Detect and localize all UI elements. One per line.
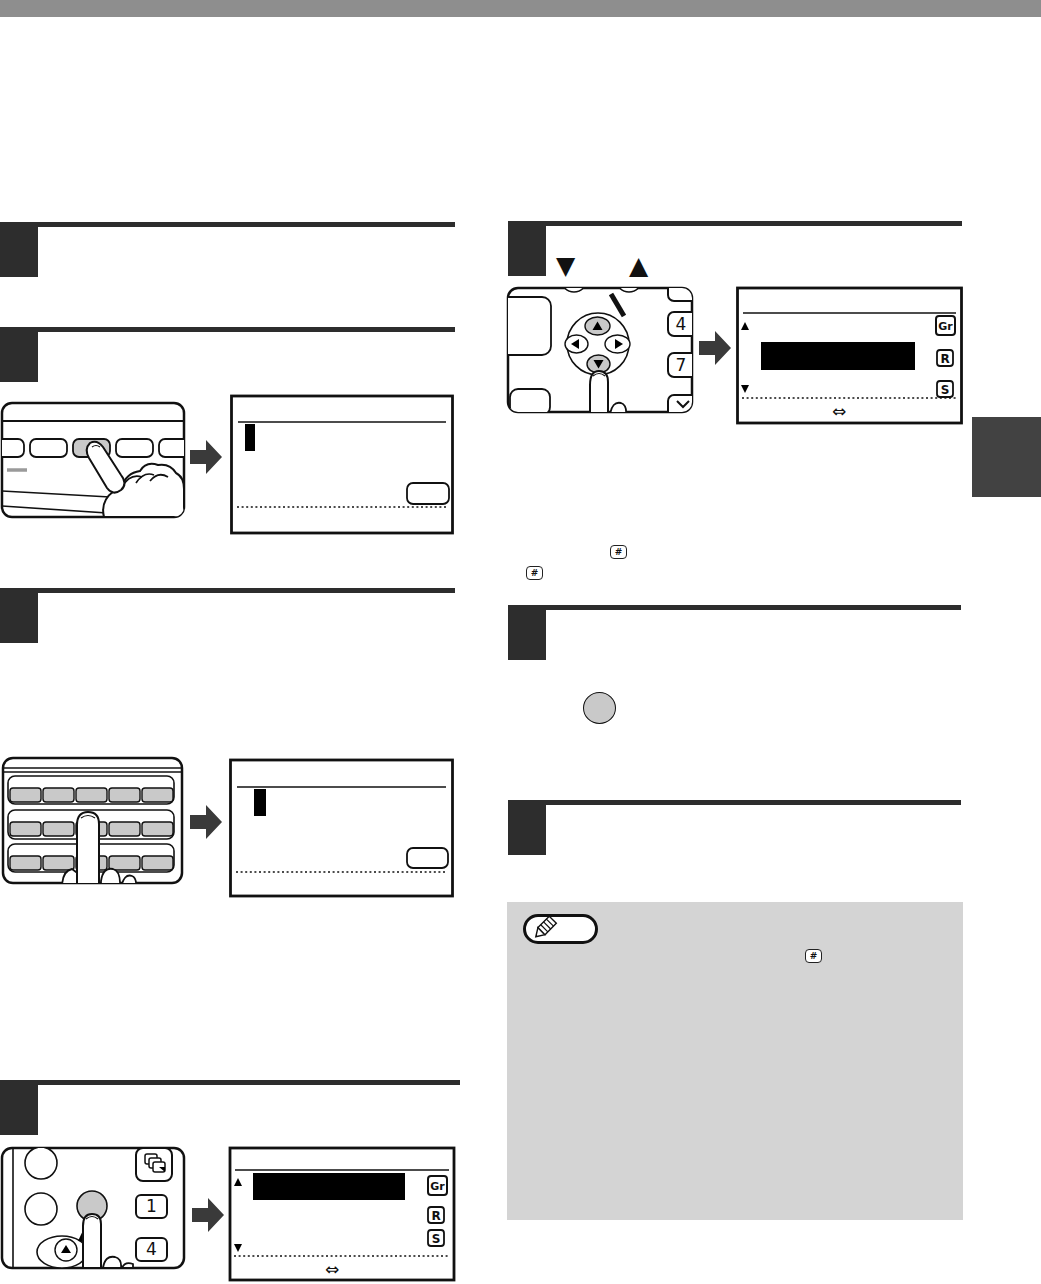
lcd-screen-list-illustration: Gr R S ⇔ [736, 286, 963, 425]
numeric-key-4-label: 4 [676, 314, 687, 334]
lcd-screen-entry-illustration [229, 757, 454, 898]
next-arrow-icon [190, 438, 223, 476]
page-edge-tab [972, 417, 1041, 497]
step-number-block-left-3 [0, 588, 38, 643]
lcd-frame [230, 1148, 454, 1280]
note-badge [523, 914, 598, 944]
dial-panel-illustration: 1 4 [0, 1145, 190, 1284]
group-mode-icon-label: Gr [430, 1180, 445, 1193]
arrow-pad-panel-illustration: 4 7 [505, 285, 700, 415]
standard-mode-icon-label: S [941, 383, 950, 397]
lcd-softkey-button [407, 483, 449, 504]
step-number-block-right-2 [508, 605, 546, 660]
step-number-block-right-3 [508, 800, 546, 855]
standard-mode-icon-label: S [432, 1232, 441, 1246]
side-key [505, 297, 551, 355]
step-header-rule-right-2 [508, 605, 961, 610]
side-key [510, 389, 550, 415]
lcd-text-cursor [245, 424, 255, 451]
step-header-rule-right-3 [508, 800, 961, 805]
step-header-rule-left-4 [0, 1080, 460, 1085]
round-key-icon [583, 692, 616, 724]
round-key [25, 1147, 57, 1179]
hash-key-icon: # [805, 949, 822, 963]
numeric-key-7-label: 7 [676, 355, 687, 375]
numeric-key-4-label: 4 [146, 1239, 157, 1259]
lcd-text-cursor [254, 789, 266, 816]
swap-arrow-icon: ⇔ [832, 401, 846, 421]
round-key [25, 1193, 57, 1225]
step-number-block-left-4 [0, 1080, 38, 1135]
hash-key-icon: # [526, 566, 543, 580]
step-number-block-left-1 [0, 222, 38, 277]
step-header-rule-left-3 [0, 588, 455, 593]
pencil-icon [530, 917, 560, 941]
function-key [159, 439, 190, 457]
hash-key-icon: # [610, 545, 627, 559]
function-key [0, 439, 24, 457]
letter-keys-row-1 [10, 788, 173, 802]
lcd-screen-list-illustration: Gr R S ⇔ [228, 1146, 456, 1282]
lcd-selected-row [761, 342, 915, 370]
swap-arrow-icon: ⇔ [325, 1259, 339, 1279]
lcd-screen-entry-illustration [230, 394, 454, 535]
letter-keyboard-illustration [0, 755, 190, 888]
page-top-bar [0, 0, 1041, 17]
next-arrow-icon [192, 1196, 225, 1234]
numeric-key-1-label: 1 [146, 1196, 157, 1216]
function-key [116, 439, 153, 457]
resolution-mode-icon-label: R [431, 1209, 440, 1223]
step-header-rule-left-2 [0, 327, 455, 332]
function-key-panel-illustration [0, 395, 190, 525]
up-arrow-key-indicator: ▲ [629, 253, 648, 278]
next-arrow-icon [190, 803, 223, 841]
lcd-frame [232, 396, 453, 533]
lcd-softkey-button [407, 848, 448, 868]
step-header-rule-left-1 [0, 222, 455, 227]
step-number-block-right-1 [508, 221, 546, 276]
group-mode-icon-label: Gr [938, 320, 953, 333]
resolution-mode-icon-label: R [940, 352, 949, 366]
down-arrow-key-indicator: ▼ [556, 253, 575, 278]
next-arrow-icon [699, 329, 732, 367]
lcd-frame [231, 760, 453, 896]
lcd-selected-row [253, 1173, 405, 1200]
step-number-block-left-2 [0, 327, 38, 382]
note-box: # [507, 902, 963, 1220]
function-key [30, 439, 67, 457]
step-header-rule-right-1 [508, 221, 962, 226]
